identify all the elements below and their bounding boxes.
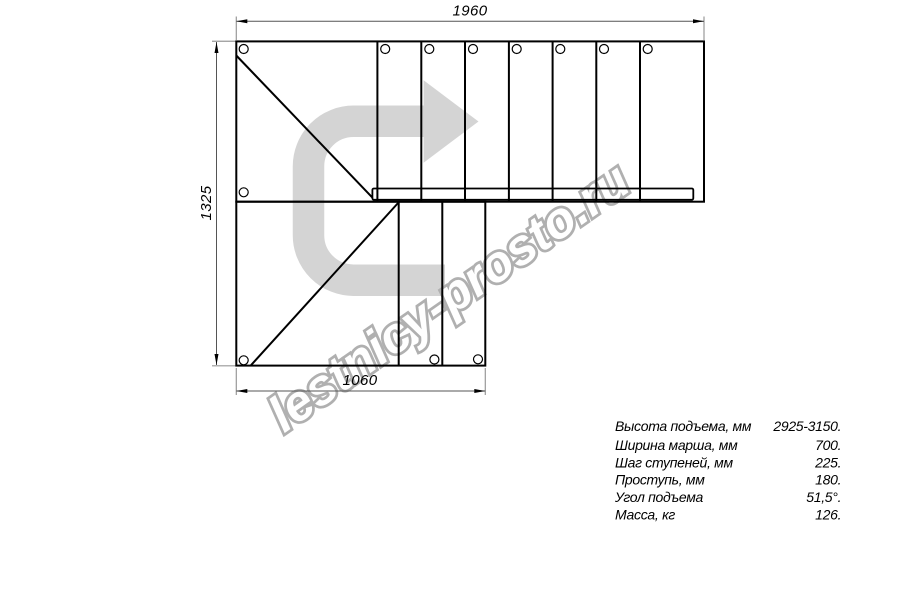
svg-text:700.: 700. (815, 437, 841, 453)
svg-text:180.: 180. (815, 472, 841, 488)
svg-text:51,5°.: 51,5°. (806, 489, 841, 505)
svg-text:Угол подъема: Угол подъема (614, 489, 704, 505)
svg-text:1060: 1060 (343, 372, 378, 389)
svg-text:1960: 1960 (453, 3, 488, 20)
svg-text:Ширина марша, мм: Ширина марша, мм (615, 437, 738, 453)
svg-text:2925-3150.: 2925-3150. (772, 418, 841, 434)
svg-text:Высота подъема, мм: Высота подъема, мм (615, 418, 752, 434)
svg-text:225.: 225. (814, 454, 841, 470)
svg-text:1325: 1325 (198, 185, 215, 220)
svg-text:Проступь, мм: Проступь, мм (615, 472, 705, 488)
svg-text:Шаг ступеней, мм: Шаг ступеней, мм (615, 454, 733, 470)
svg-text:126.: 126. (815, 506, 841, 522)
svg-text:Масса, кг: Масса, кг (615, 506, 675, 522)
